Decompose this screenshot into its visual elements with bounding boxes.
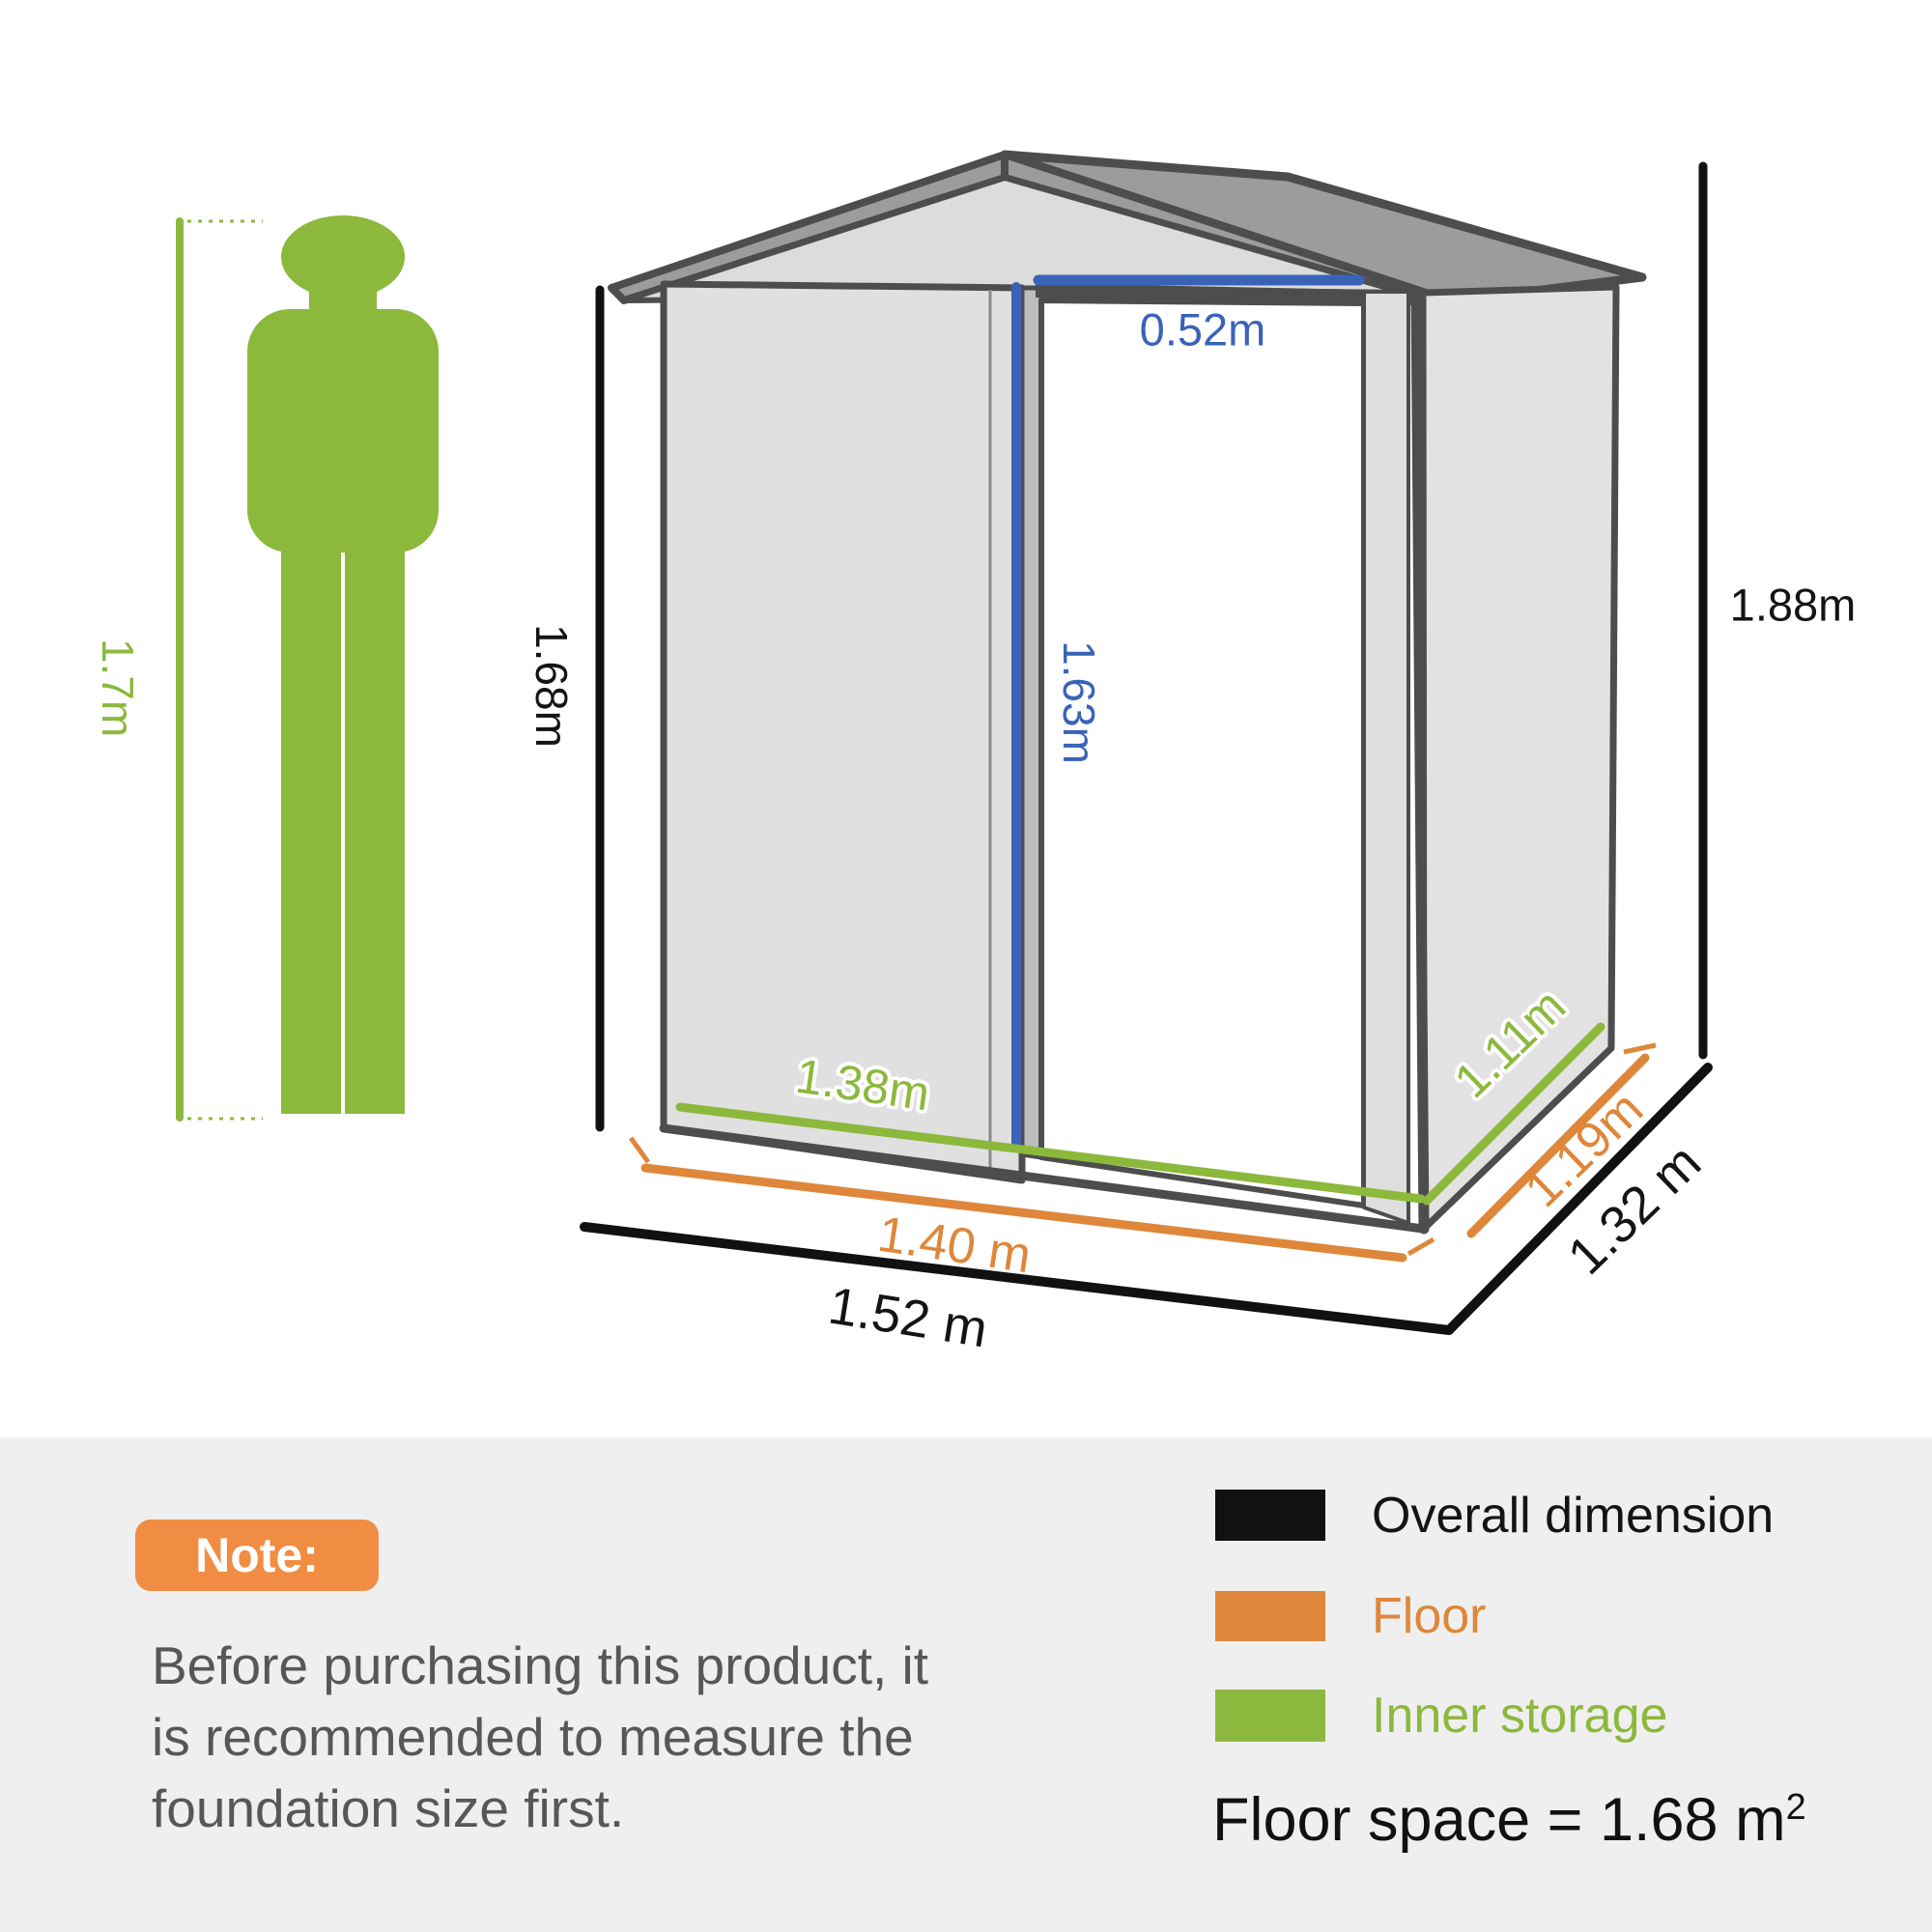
person-torso bbox=[247, 309, 439, 553]
legend-label-floor: Floor bbox=[1372, 1587, 1486, 1645]
person-left-leg bbox=[281, 536, 341, 1114]
note-line: Before purchasing this product, it bbox=[152, 1630, 928, 1701]
shed-right-wall bbox=[1423, 287, 1616, 1229]
floor-width-end-tick bbox=[631, 1138, 648, 1162]
legend-label-overall: Overall dimension bbox=[1372, 1487, 1774, 1545]
floor-swatch bbox=[1215, 1591, 1325, 1641]
door-width-label: 0.52m bbox=[1140, 303, 1266, 356]
legend-item-inner-storage: Inner storage bbox=[1215, 1690, 1667, 1742]
note-badge: Note: bbox=[135, 1520, 379, 1591]
inner-height-label: 1.68m bbox=[526, 624, 578, 748]
floor-space-value: Floor space = 1.68 m2 bbox=[1212, 1785, 1806, 1855]
legend-item-floor: Floor bbox=[1215, 1591, 1486, 1641]
floor-depth-tick-front bbox=[1408, 1239, 1434, 1254]
note-badge-label: Note: bbox=[195, 1527, 319, 1583]
floor-depth-tick-back bbox=[1624, 1045, 1656, 1052]
bottom-panel: Note: Before purchasing this product, it… bbox=[0, 1437, 1932, 1932]
door-height-label: 1.63m bbox=[1053, 640, 1105, 764]
floor-space-exponent: 2 bbox=[1786, 1787, 1806, 1828]
overall-height-label: 1.88m bbox=[1730, 579, 1857, 632]
dimension-diagram: 1.7m 1.68m 1.63m 0.52m 1.88m 1.38m 1.40 … bbox=[0, 0, 1932, 1932]
legend-label-inner-storage: Inner storage bbox=[1372, 1687, 1667, 1745]
legend-item-overall: Overall dimension bbox=[1215, 1490, 1774, 1541]
overall-dimension-swatch bbox=[1215, 1490, 1325, 1541]
inner-storage-swatch bbox=[1215, 1690, 1325, 1742]
person-height-label: 1.7m bbox=[92, 639, 144, 737]
person-right-leg bbox=[345, 536, 405, 1114]
note-line: is recommended to measure the bbox=[152, 1701, 928, 1773]
person-icon bbox=[247, 215, 439, 1114]
floor-space-text: Floor space = 1.68 m bbox=[1212, 1786, 1786, 1854]
note-line: foundation size first. bbox=[152, 1773, 928, 1844]
note-text: Before purchasing this product, it is re… bbox=[152, 1630, 928, 1844]
shed-front-wall bbox=[664, 284, 1022, 1180]
shed-door-track-strip bbox=[1364, 292, 1408, 1223]
